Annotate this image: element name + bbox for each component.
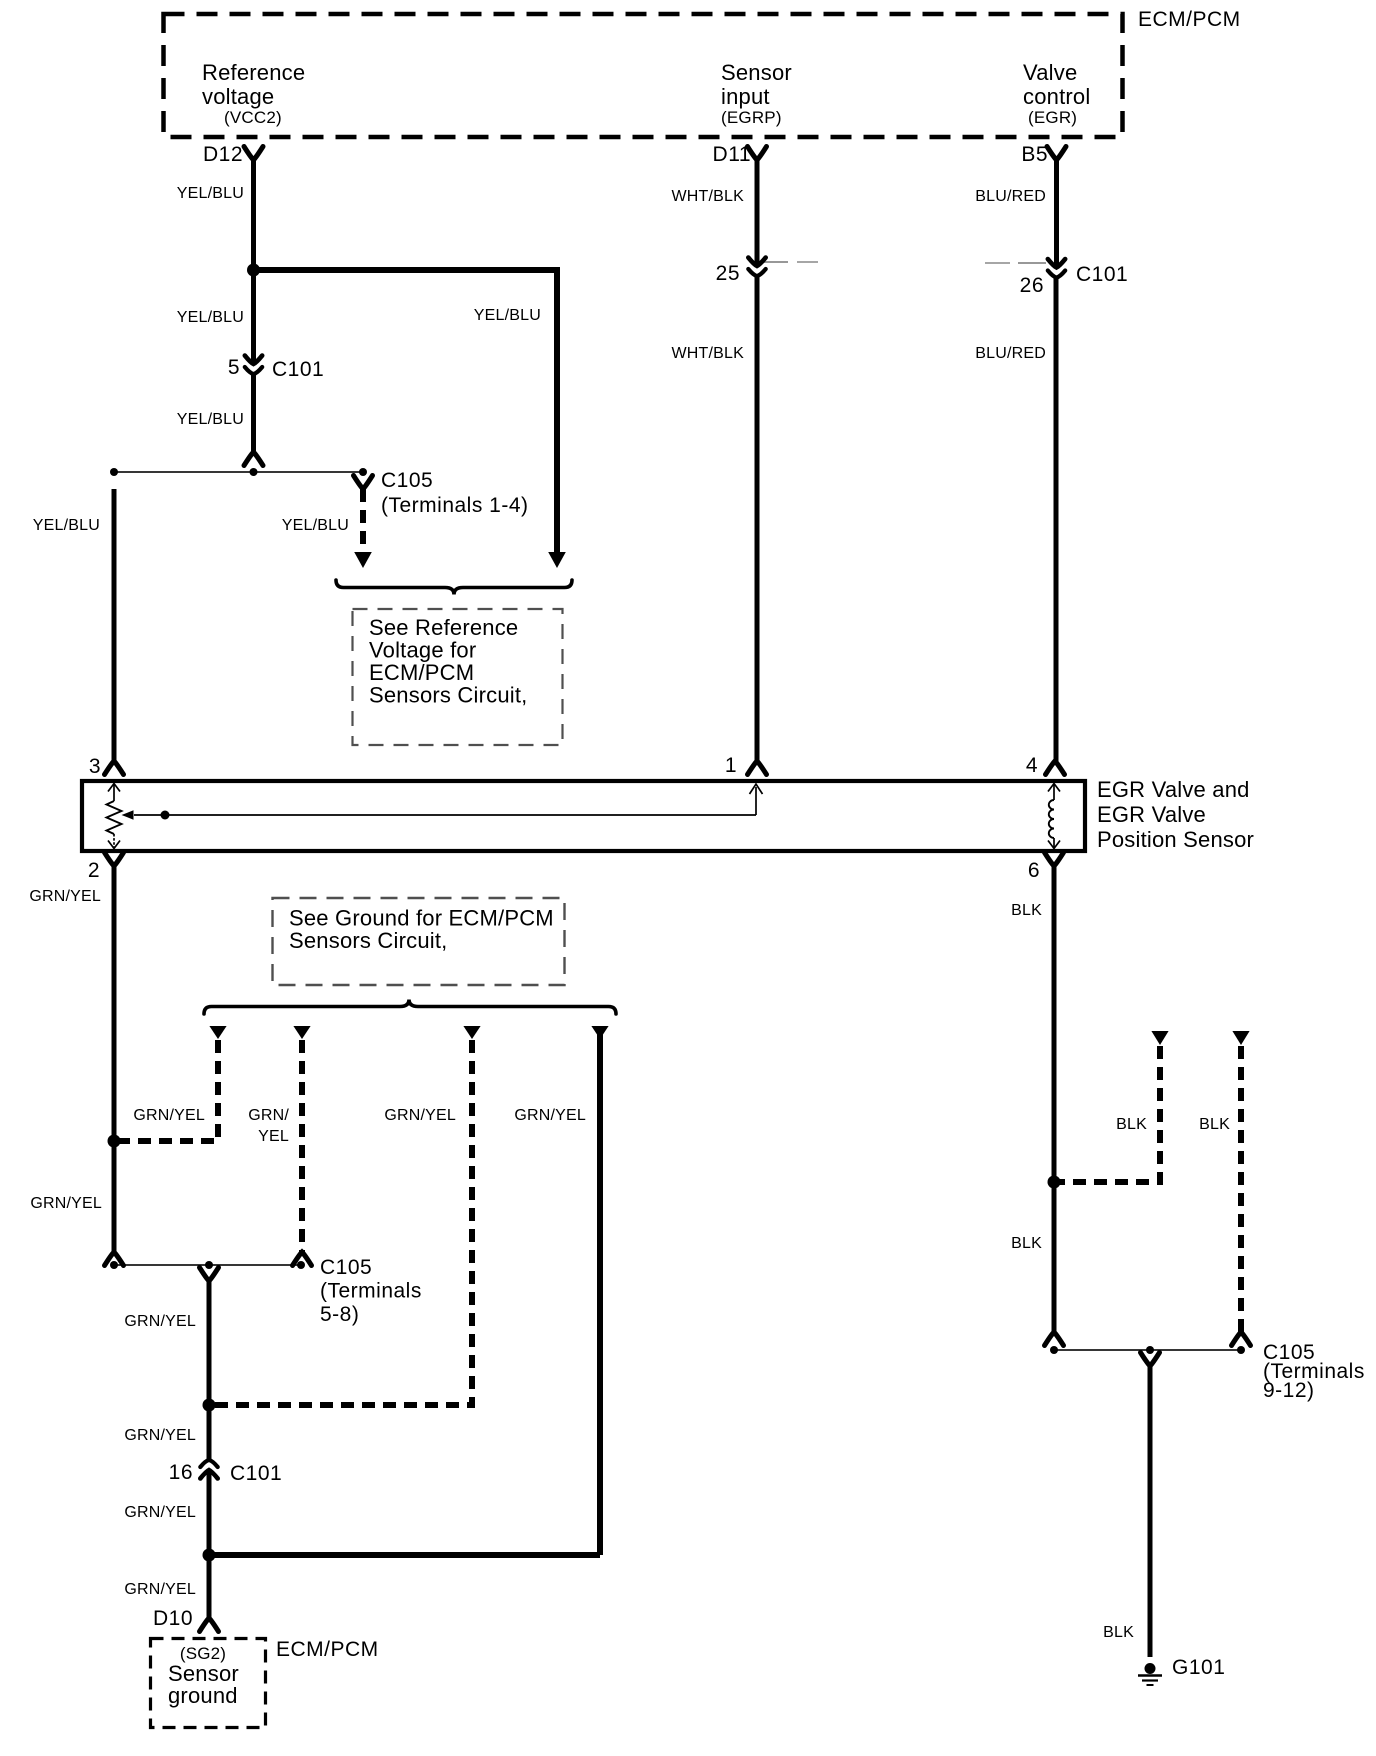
svg-text:See Reference: See Reference bbox=[369, 615, 518, 640]
svg-text:(EGRP): (EGRP) bbox=[721, 108, 782, 127]
svg-text:26: 26 bbox=[1020, 274, 1044, 297]
svg-text:YEL/BLU: YEL/BLU bbox=[177, 309, 244, 326]
svg-text:C105: C105 bbox=[320, 1256, 372, 1279]
svg-text:ECM/PCM: ECM/PCM bbox=[369, 660, 474, 685]
svg-text:D10: D10 bbox=[153, 1607, 193, 1630]
svg-text:ground: ground bbox=[168, 1683, 238, 1708]
svg-text:G101: G101 bbox=[1172, 1656, 1225, 1679]
svg-text:GRN/YEL: GRN/YEL bbox=[124, 1313, 196, 1330]
svg-text:GRN/YEL: GRN/YEL bbox=[29, 888, 101, 905]
svg-text:YEL/BLU: YEL/BLU bbox=[177, 185, 244, 202]
svg-text:BLU/RED: BLU/RED bbox=[975, 345, 1046, 362]
svg-text:voltage: voltage bbox=[202, 84, 274, 109]
svg-text:WHT/BLK: WHT/BLK bbox=[671, 345, 744, 362]
svg-text:Voltage for: Voltage for bbox=[369, 638, 476, 663]
svg-text:input: input bbox=[721, 84, 770, 109]
svg-text:9-12): 9-12) bbox=[1263, 1379, 1315, 1402]
svg-text:YEL: YEL bbox=[258, 1128, 289, 1145]
svg-text:GRN/YEL: GRN/YEL bbox=[133, 1107, 205, 1124]
svg-text:BLK: BLK bbox=[1103, 1624, 1134, 1641]
svg-text:1: 1 bbox=[725, 754, 737, 777]
svg-text:16: 16 bbox=[169, 1461, 193, 1484]
svg-text:C101: C101 bbox=[1076, 263, 1128, 286]
svg-text:control: control bbox=[1023, 84, 1090, 109]
svg-text:(EGR): (EGR) bbox=[1028, 108, 1077, 127]
svg-text:YEL/BLU: YEL/BLU bbox=[282, 517, 349, 534]
svg-text:Reference: Reference bbox=[202, 60, 305, 85]
svg-text:C101: C101 bbox=[230, 1462, 282, 1485]
svg-text:GRN/YEL: GRN/YEL bbox=[124, 1427, 196, 1444]
svg-text:Sensors Circuit,: Sensors Circuit, bbox=[289, 928, 447, 953]
svg-text:Sensor: Sensor bbox=[721, 60, 792, 85]
svg-text:ECM/PCM: ECM/PCM bbox=[276, 1638, 379, 1661]
svg-text:YEL/BLU: YEL/BLU bbox=[474, 307, 541, 324]
svg-text:BLK: BLK bbox=[1199, 1116, 1230, 1133]
svg-text:5-8): 5-8) bbox=[320, 1303, 359, 1326]
svg-text:EGR Valve and: EGR Valve and bbox=[1097, 777, 1250, 802]
svg-text:EGR Valve: EGR Valve bbox=[1097, 802, 1206, 827]
svg-text:C101: C101 bbox=[272, 358, 324, 381]
svg-text:GRN/YEL: GRN/YEL bbox=[384, 1107, 456, 1124]
svg-text:B5: B5 bbox=[1021, 143, 1048, 166]
svg-text:25: 25 bbox=[716, 262, 740, 285]
svg-text:(Terminals: (Terminals bbox=[320, 1280, 422, 1303]
svg-text:BLU/RED: BLU/RED bbox=[975, 188, 1046, 205]
svg-text:BLK: BLK bbox=[1011, 902, 1042, 919]
svg-text:YEL/BLU: YEL/BLU bbox=[177, 411, 244, 428]
svg-text:Sensors Circuit,: Sensors Circuit, bbox=[369, 683, 527, 708]
svg-text:D12: D12 bbox=[203, 143, 243, 166]
svg-text:BLK: BLK bbox=[1011, 1235, 1042, 1252]
svg-text:C105: C105 bbox=[381, 469, 433, 492]
svg-text:3: 3 bbox=[89, 755, 101, 778]
svg-text:4: 4 bbox=[1026, 754, 1038, 777]
svg-text:D11: D11 bbox=[713, 143, 751, 166]
svg-text:GRN/: GRN/ bbox=[248, 1107, 289, 1124]
svg-text:6: 6 bbox=[1028, 859, 1040, 882]
svg-text:Valve: Valve bbox=[1023, 60, 1077, 85]
svg-text:WHT/BLK: WHT/BLK bbox=[671, 188, 744, 205]
svg-text:ECM/PCM: ECM/PCM bbox=[1138, 8, 1241, 31]
svg-text:GRN/YEL: GRN/YEL bbox=[124, 1504, 196, 1521]
svg-text:5: 5 bbox=[228, 356, 240, 379]
svg-text:GRN/YEL: GRN/YEL bbox=[30, 1195, 102, 1212]
svg-text:(Terminals 1-4): (Terminals 1-4) bbox=[381, 494, 529, 517]
svg-text:(VCC2): (VCC2) bbox=[224, 108, 282, 127]
svg-text:Position Sensor: Position Sensor bbox=[1097, 827, 1254, 852]
svg-text:See Ground for ECM/PCM: See Ground for ECM/PCM bbox=[289, 906, 554, 931]
svg-text:GRN/YEL: GRN/YEL bbox=[124, 1581, 196, 1598]
svg-text:2: 2 bbox=[88, 859, 100, 882]
svg-text:YEL/BLU: YEL/BLU bbox=[33, 517, 100, 534]
svg-text:GRN/YEL: GRN/YEL bbox=[514, 1107, 586, 1124]
svg-text:BLK: BLK bbox=[1116, 1116, 1147, 1133]
